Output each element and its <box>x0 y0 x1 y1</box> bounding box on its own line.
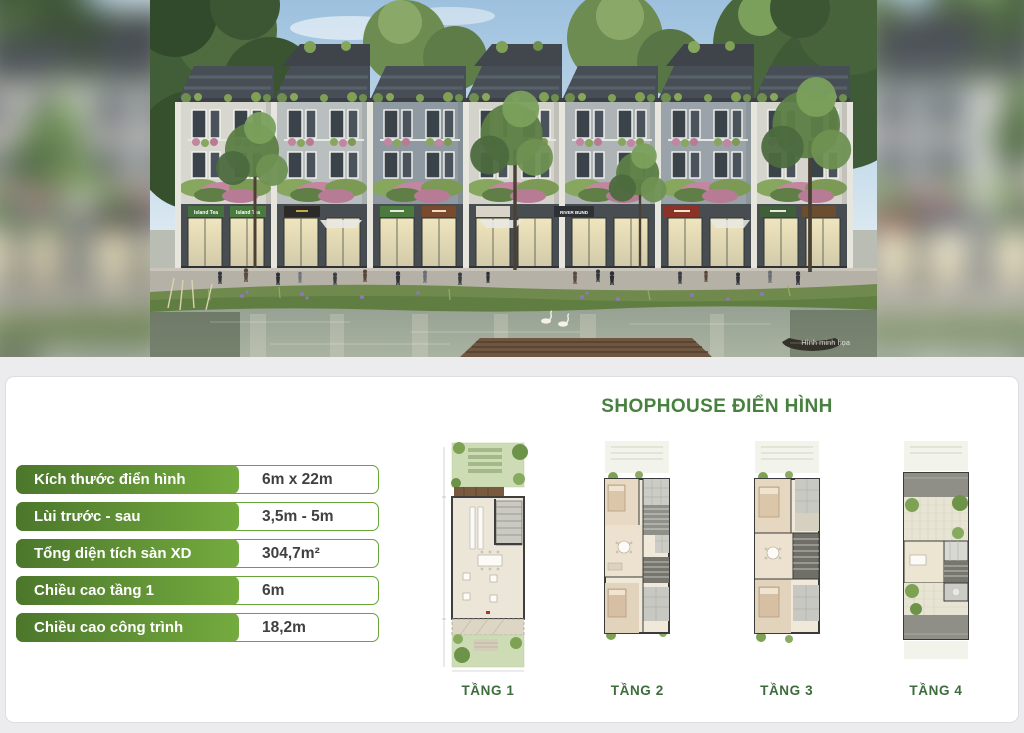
floor-plan-1-image <box>432 439 544 675</box>
brochure-page: Island Tea Island Tea RIVER BUND <box>0 0 1024 733</box>
spec-value-text: 18,2m <box>262 619 306 637</box>
spec-row: 6m Chiều cao tầng 1 <box>16 576 379 605</box>
hero-photo <box>0 0 1024 357</box>
spec-label-text: Lùi trước - sau <box>34 508 141 525</box>
floor-plans: TẦNG 1 <box>414 439 1010 698</box>
floor-plan-4: TẦNG 4 <box>862 439 1010 698</box>
hero-photo-render <box>150 0 877 357</box>
hero-photo-blur-left <box>0 0 150 357</box>
floor-plan-3-image <box>731 439 843 675</box>
spec-label-text: Chiều cao công trình <box>34 619 183 636</box>
spec-row: 18,2m Chiều cao công trình <box>16 613 379 642</box>
spec-label: Kích thước điển hình <box>16 465 239 494</box>
spec-row: 6m x 22m Kích thước điển hình <box>16 465 379 494</box>
floor-plan-2-image <box>581 439 693 675</box>
spec-label-text: Chiều cao tầng 1 <box>34 582 154 599</box>
floor-plan-1-label: TẦNG 1 <box>461 683 514 698</box>
spec-value-text: 6m x 22m <box>262 471 333 489</box>
floor-plan-1: TẦNG 1 <box>414 439 562 698</box>
spec-label-text: Kích thước điển hình <box>34 471 186 488</box>
spec-row: 304,7m² Tổng diện tích sàn XD <box>16 539 379 568</box>
spec-label: Tổng diện tích sàn XD <box>16 539 239 568</box>
hero-photo-blur-right <box>877 0 1024 357</box>
spec-table: 6m x 22m Kích thước điển hình 3,5m - 5m … <box>16 465 379 650</box>
info-panel: SHOPHOUSE ĐIỂN HÌNH 6m x 22m Kích thước … <box>5 376 1019 723</box>
floor-plan-2-label: TẦNG 2 <box>611 683 664 698</box>
spec-value-text: 6m <box>262 582 284 600</box>
spec-row: 3,5m - 5m Lùi trước - sau <box>16 502 379 531</box>
floor-plan-4-image <box>880 439 992 675</box>
floor-plan-3-label: TẦNG 3 <box>760 683 813 698</box>
spec-label: Chiều cao tầng 1 <box>16 576 239 605</box>
spec-label-text: Tổng diện tích sàn XD <box>34 545 192 562</box>
page-title: SHOPHOUSE ĐIỂN HÌNH <box>421 396 1013 418</box>
spec-value-text: 304,7m² <box>262 545 320 563</box>
spec-value-text: 3,5m - 5m <box>262 508 334 526</box>
floor-plan-4-label: TẦNG 4 <box>909 683 962 698</box>
floor-plan-2: TẦNG 2 <box>563 439 711 698</box>
spec-label: Lùi trước - sau <box>16 502 239 531</box>
floor-plan-3: TẦNG 3 <box>713 439 861 698</box>
spec-label: Chiều cao công trình <box>16 613 239 642</box>
